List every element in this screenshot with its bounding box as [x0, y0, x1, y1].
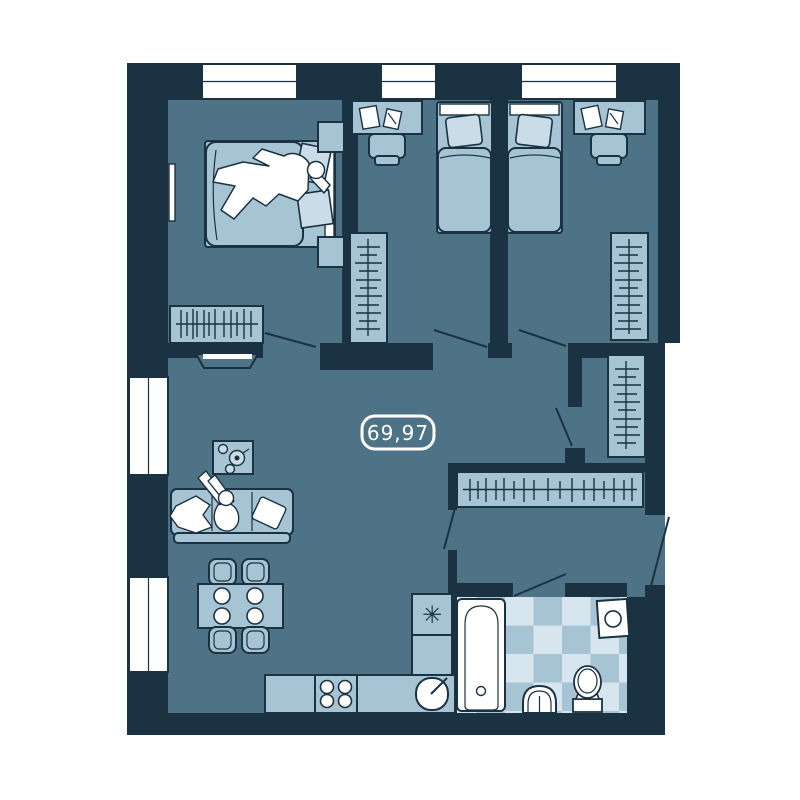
bathtub [457, 599, 505, 711]
wall-center-chunk [320, 343, 433, 370]
wardrobe-master [170, 306, 263, 343]
head [308, 162, 325, 179]
drain [477, 687, 486, 696]
toilet [573, 666, 602, 712]
wall-between-bedroom-doors [488, 343, 512, 358]
desk-bedroom-3 [574, 101, 645, 134]
burner [339, 681, 352, 694]
plate [247, 608, 263, 624]
floor-plan: ✳ [0, 0, 800, 800]
nightstand-bottom [318, 237, 344, 267]
washbasin [523, 686, 556, 713]
teapot-lid [235, 456, 240, 461]
wall-right-upper [658, 63, 680, 343]
wall-hall-divider-upper [448, 463, 457, 510]
window-strip-master [169, 164, 175, 221]
cup [219, 445, 228, 454]
wall-corridor-stub [568, 358, 582, 407]
wall-bathroom-top-right [565, 583, 627, 597]
tv-screen [203, 354, 252, 359]
desk-bedroom-2 [352, 101, 422, 134]
wall-bathroom-top-left [457, 583, 513, 597]
window-top-master [202, 64, 297, 99]
plate [247, 588, 263, 604]
window-left-upper [129, 377, 168, 475]
duvet [438, 148, 491, 232]
wardrobe-bedroom-3 [611, 233, 648, 340]
kitchen-sink [416, 678, 448, 710]
sofa-base [174, 533, 290, 543]
wall-right-below-entrance [645, 585, 665, 597]
single-bed-bedroom-2 [437, 102, 492, 233]
dining-chair [242, 559, 269, 585]
dining-chair [209, 559, 236, 585]
coat-rack [457, 472, 643, 507]
dining-chair [242, 627, 269, 653]
plate [214, 608, 230, 624]
single-bed-bedroom-3 [507, 102, 562, 233]
chair-bedroom-2 [369, 134, 405, 165]
wardrobe-bedroom-2 [350, 233, 387, 343]
kitchen-counter-corner [412, 635, 452, 675]
burner [321, 695, 334, 708]
torso [214, 503, 238, 531]
plate [214, 588, 230, 604]
paper [581, 105, 602, 129]
chair-bedroom-3 [591, 134, 627, 165]
wall-hall-divider-lower [448, 550, 457, 597]
headboard [440, 104, 489, 115]
washer-door [605, 610, 622, 627]
fridge: ✳ [412, 594, 452, 635]
pillow [515, 114, 552, 148]
headboard [510, 104, 559, 115]
tv [196, 354, 258, 368]
double-bed [205, 141, 335, 247]
wall-corridor-stub-2 [565, 448, 585, 463]
duvet [508, 148, 561, 232]
stove [315, 675, 357, 713]
area-label-text: 69,97 [367, 421, 429, 445]
floor-plan-page: ✳ [0, 0, 800, 800]
burner [321, 681, 334, 694]
window-left-lower [129, 577, 168, 672]
area-label: 69,97 [362, 416, 434, 449]
nightstand-top [318, 122, 344, 152]
wall-bathroom-right [627, 597, 665, 735]
head [219, 491, 234, 506]
wall-right-mid [645, 343, 665, 515]
wall-bottom [127, 713, 665, 735]
window-top-bedroom-3 [521, 64, 617, 99]
wardrobe-hall [608, 355, 645, 457]
fridge-symbol: ✳ [422, 601, 442, 629]
cup [226, 465, 235, 474]
dining-table [198, 584, 283, 628]
window-top-bedroom-2 [381, 64, 436, 99]
burner [339, 695, 352, 708]
toilet-tank [573, 699, 602, 712]
pillow [445, 114, 482, 148]
wall-hall-top [455, 463, 645, 472]
washing-machine [597, 599, 630, 638]
coffee-table [213, 441, 253, 474]
dining-chair [209, 627, 236, 653]
paper [359, 106, 379, 130]
